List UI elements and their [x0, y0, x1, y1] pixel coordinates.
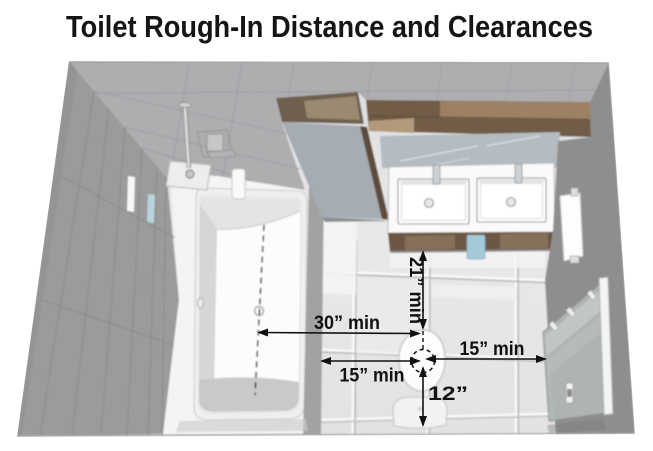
svg-text:15” min: 15” min	[340, 366, 405, 387]
svg-text:30” min: 30” min	[314, 313, 380, 334]
svg-text:Toilet Rough-In Distance and C: Toilet Rough-In Distance and Clearances	[66, 9, 593, 44]
svg-text:21” min: 21” min	[405, 257, 426, 324]
svg-text:12”: 12”	[428, 383, 468, 405]
svg-text:15” min: 15” min	[460, 339, 525, 360]
